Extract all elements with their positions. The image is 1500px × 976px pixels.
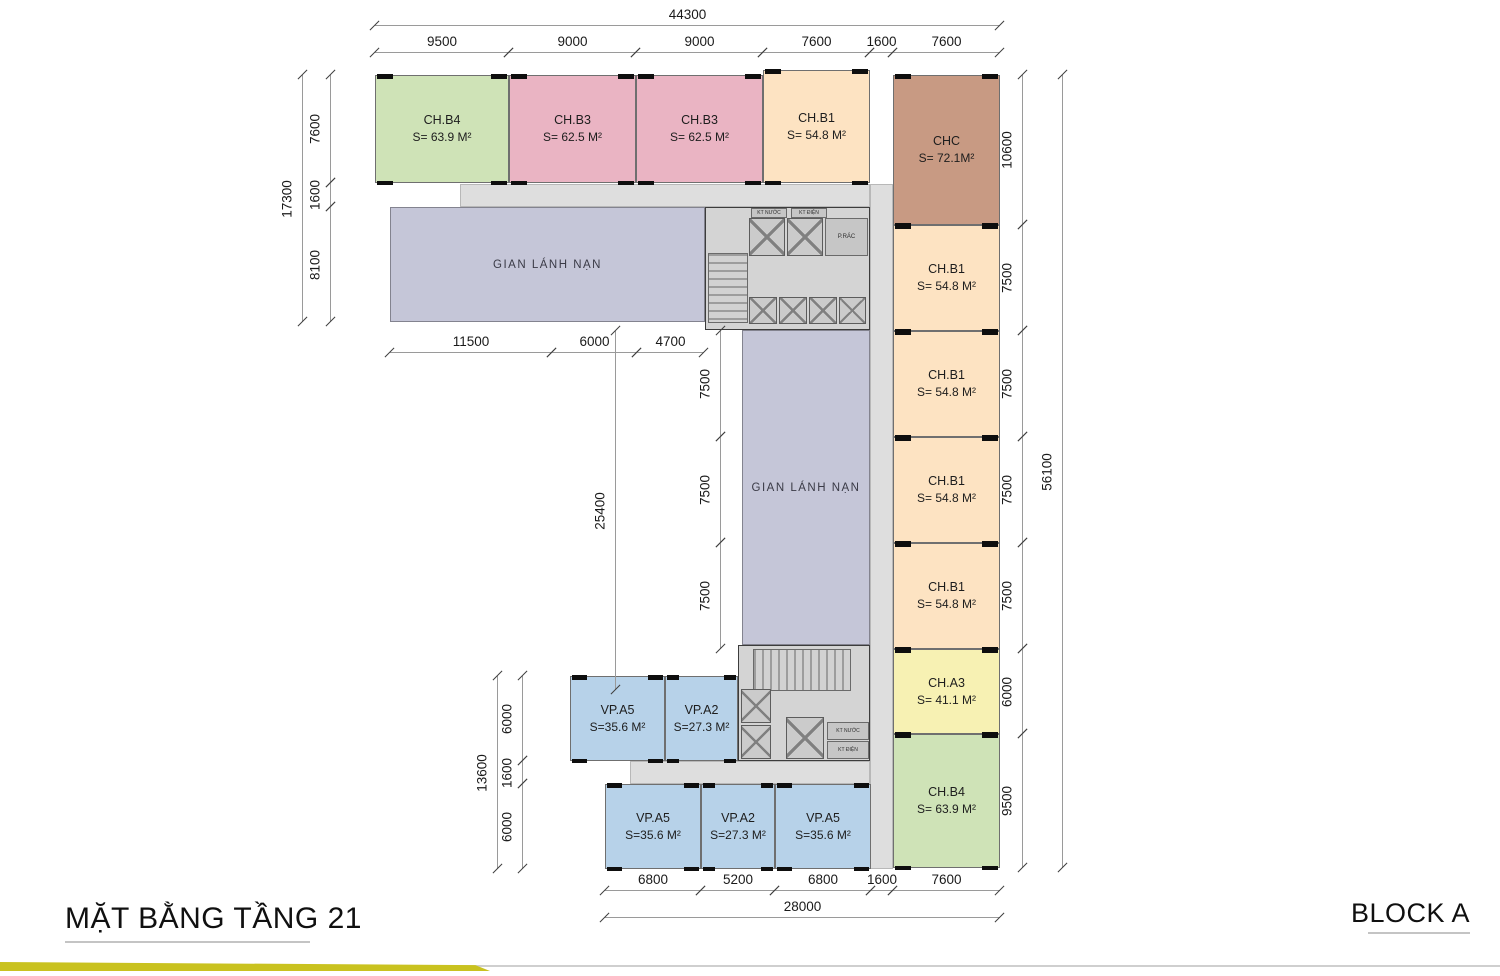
dimension-9000: 9000 — [509, 52, 636, 53]
dimension-17300: 17300 — [302, 75, 303, 322]
room-label: VP.A5 — [806, 811, 840, 826]
refuge-label: GIAN LÁNH NẠN — [493, 259, 602, 271]
dimension-13600: 13600 — [497, 676, 498, 869]
wall-mark — [745, 74, 761, 79]
room-area: S=27.3 M² — [674, 720, 730, 734]
dimension-7500: 7500 — [720, 543, 721, 649]
page-title: MẶT BẰNG TẦNG 21 — [65, 902, 362, 936]
shaft-kt-i-n: KT ĐIỆN — [791, 208, 827, 218]
dim-label: 7500 — [1000, 369, 1015, 399]
room-area: S= 63.9 M² — [412, 130, 471, 144]
room-label: CH.B4 — [928, 785, 965, 800]
wall-mark — [982, 733, 998, 738]
room-area: S= 54.8 M² — [787, 128, 846, 142]
wall-mark — [745, 181, 761, 186]
elevator-icon — [787, 218, 823, 256]
room-label: CH.B3 — [681, 113, 718, 128]
wall-mark — [724, 759, 736, 764]
refuge-vertical: GIAN LÁNH NẠN — [742, 330, 870, 645]
wall-mark — [607, 783, 622, 788]
dim-label: 6000 — [500, 703, 515, 733]
wall-mark — [761, 783, 773, 788]
stairs-icon — [708, 253, 748, 323]
room-label: VP.A2 — [685, 703, 719, 718]
dim-tick — [326, 70, 336, 80]
elevator-icon — [839, 297, 866, 324]
wall-mark — [895, 542, 911, 547]
wall-mark — [638, 181, 654, 186]
room-area: S=35.6 M² — [625, 828, 681, 842]
room-label: CH.B3 — [554, 113, 591, 128]
wall-mark — [765, 69, 781, 74]
room-label: CH.B1 — [928, 580, 965, 595]
dim-label: 56100 — [1040, 453, 1055, 491]
footer-bar — [0, 962, 490, 971]
room-area: S= 62.5 M² — [543, 130, 602, 144]
dimension-7600: 7600 — [763, 52, 870, 53]
dim-tick — [493, 671, 503, 681]
room-ch-a3: CH.A3S= 41.1 M² — [893, 649, 1000, 734]
dim-tick — [518, 671, 528, 681]
wall-mark — [491, 181, 507, 186]
dimension-6000: 6000 — [1022, 649, 1023, 734]
dimension-7600: 7600 — [893, 52, 1000, 53]
wall-mark — [667, 675, 679, 680]
wall-mark — [895, 866, 911, 871]
wall-mark — [895, 648, 911, 653]
wall-mark — [648, 675, 663, 680]
wall-mark — [982, 866, 998, 871]
wall-mark — [703, 867, 715, 872]
corridor-spine — [870, 184, 893, 869]
dimension-28000: 28000 — [605, 917, 1000, 918]
dim-label: 7600 — [931, 34, 961, 49]
dim-tick — [370, 21, 380, 31]
dimension-9500: 9500 — [375, 52, 509, 53]
dim-label: 28000 — [784, 899, 822, 914]
dim-label: 7500 — [1000, 475, 1015, 505]
room-area: S= 63.9 M² — [917, 802, 976, 816]
dim-label: 1600 — [308, 180, 323, 210]
dim-label: 44300 — [669, 7, 707, 22]
dimension-56100: 56100 — [1062, 75, 1063, 868]
wall-mark — [895, 330, 911, 335]
wall-mark — [982, 224, 998, 229]
dim-tick — [1058, 70, 1068, 80]
dimension-7600: 7600 — [330, 75, 331, 183]
room-label: CH.B1 — [928, 262, 965, 277]
wall-mark — [638, 74, 654, 79]
wall-mark — [377, 74, 393, 79]
dim-tick — [298, 70, 308, 80]
room-area: S= 41.1 M² — [917, 693, 976, 707]
room-area: S= 54.8 M² — [917, 385, 976, 399]
wall-mark — [895, 224, 911, 229]
wall-mark — [572, 759, 587, 764]
room-label: VP.A2 — [721, 811, 755, 826]
dim-label: 1600 — [866, 34, 896, 49]
wall-mark — [982, 330, 998, 335]
wall-mark — [648, 759, 663, 764]
dim-tick — [1018, 863, 1028, 873]
dim-label: 6800 — [808, 872, 838, 887]
core-bottom: KT NƯỚCKT ĐIỆN — [738, 645, 870, 761]
dim-tick — [716, 644, 726, 654]
wall-mark — [377, 181, 393, 186]
dimension-44300: 44300 — [375, 25, 1000, 26]
dimension-7500: 7500 — [720, 437, 721, 543]
core-room: P.RÁC — [825, 218, 868, 256]
room-vp-a2-low: VP.A2S=27.3 M² — [701, 784, 775, 869]
dim-label: 7600 — [308, 114, 323, 144]
room-ch-b1-2: CH.B1S= 54.8 M² — [893, 331, 1000, 437]
elevator-icon — [779, 297, 807, 324]
elevator-icon — [786, 717, 824, 759]
dim-label: 10600 — [1000, 131, 1015, 169]
dim-label: 4700 — [655, 334, 685, 349]
dim-tick — [385, 348, 395, 358]
wall-mark — [607, 867, 622, 872]
dim-label: 1600 — [500, 757, 515, 787]
dim-label: 8100 — [308, 249, 323, 279]
dimension-10600: 10600 — [1022, 75, 1023, 225]
dim-tick — [611, 326, 621, 336]
dim-label: 6800 — [638, 872, 668, 887]
room-label: CH.B1 — [928, 368, 965, 383]
dimension-7600: 7600 — [893, 890, 1000, 891]
elevator-icon — [749, 297, 777, 324]
room-area: S= 54.8 M² — [917, 491, 976, 505]
refuge-label: GIAN LÁNH NẠN — [752, 482, 861, 494]
refuge-horizontal: GIAN LÁNH NẠN — [390, 207, 705, 322]
dim-tick — [1058, 863, 1068, 873]
dimension-9000: 9000 — [636, 52, 763, 53]
room-ch-b4-top: CH.B4S= 63.9 M² — [375, 75, 509, 183]
room-chc: CHCS= 72.1M² — [893, 75, 1000, 225]
dim-label: 7600 — [801, 34, 831, 49]
wall-mark — [982, 436, 998, 441]
wall-mark — [761, 867, 773, 872]
room-area: S= 72.1M² — [919, 151, 975, 165]
wall-mark — [618, 181, 634, 186]
corridor-bottom — [630, 761, 870, 784]
wall-mark — [982, 74, 998, 79]
elevator-icon — [749, 218, 785, 256]
dim-tick — [995, 886, 1005, 896]
dim-label: 7500 — [698, 369, 713, 399]
wall-mark — [777, 867, 792, 872]
dim-tick — [518, 864, 528, 874]
dim-label: 7500 — [1000, 263, 1015, 293]
shaft-kt-n-c: KT NƯỚC — [751, 208, 787, 218]
room-ch-b1-1: CH.B1S= 54.8 M² — [893, 225, 1000, 331]
room-ch-b3-1: CH.B3S= 62.5 M² — [509, 75, 636, 183]
room-label: VP.A5 — [601, 703, 635, 718]
wall-mark — [724, 675, 736, 680]
dimension-7500: 7500 — [1022, 331, 1023, 437]
wall-mark — [765, 181, 781, 186]
dim-label: 25400 — [593, 492, 608, 530]
dimension-1600: 1600 — [330, 183, 331, 207]
dimension-7500: 7500 — [1022, 225, 1023, 331]
floor-plan-canvas: MẶT BẰNG TẦNG 21 BLOCK A GIAN LÁNH NẠNGI… — [0, 0, 1500, 976]
room-ch-b1-top: CH.B1S= 54.8 M² — [763, 70, 870, 183]
room-ch-b3-2: CH.B3S= 62.5 M² — [636, 75, 763, 183]
room-ch-b1-3: CH.B1S= 54.8 M² — [893, 437, 1000, 543]
wall-mark — [982, 542, 998, 547]
dim-tick — [1018, 70, 1028, 80]
wall-mark — [854, 783, 869, 788]
room-ch-b4-bottom: CH.B4S= 63.9 M² — [893, 734, 1000, 868]
dim-tick — [370, 48, 380, 58]
dim-label: 6000 — [1000, 676, 1015, 706]
dim-tick — [995, 48, 1005, 58]
page-title-underline — [65, 941, 310, 943]
wall-mark — [982, 648, 998, 653]
dimension-9500: 9500 — [1022, 734, 1023, 868]
dimension-7500: 7500 — [720, 331, 721, 437]
dim-label: 9500 — [1000, 786, 1015, 816]
dimension-6000: 6000 — [522, 784, 523, 869]
wall-mark — [491, 74, 507, 79]
dimension-6800: 6800 — [605, 890, 701, 891]
dim-tick — [600, 913, 610, 923]
footer-line — [455, 965, 1500, 967]
wall-mark — [852, 181, 868, 186]
wall-mark — [777, 783, 792, 788]
room-label: CH.B1 — [928, 474, 965, 489]
wall-mark — [895, 733, 911, 738]
dim-tick — [298, 317, 308, 327]
shaft-kt-i-n: KT ĐIỆN — [827, 741, 869, 759]
room-ch-b1-4: CH.B1S= 54.8 M² — [893, 543, 1000, 649]
room-label: VP.A5 — [636, 811, 670, 826]
room-label: CH.B1 — [798, 111, 835, 126]
dim-label: 13600 — [475, 754, 490, 792]
elevator-icon — [741, 689, 771, 723]
room-vp-a5-up: VP.A5S=35.6 M² — [570, 676, 665, 761]
dimension-7500: 7500 — [1022, 543, 1023, 649]
dim-label: 9000 — [557, 34, 587, 49]
room-vp-a2-up: VP.A2S=27.3 M² — [665, 676, 738, 761]
room-label: CHC — [933, 134, 960, 149]
dim-label: 5200 — [723, 872, 753, 887]
wall-mark — [684, 867, 699, 872]
room-vp-a5-low-1: VP.A5S=35.6 M² — [605, 784, 701, 869]
wall-mark — [511, 181, 527, 186]
dim-tick — [600, 886, 610, 896]
room-area: S=27.3 M² — [710, 828, 766, 842]
wall-mark — [667, 759, 679, 764]
dim-tick — [995, 913, 1005, 923]
dimension-25400: 25400 — [615, 331, 616, 690]
dim-tick — [326, 317, 336, 327]
dim-label: 7600 — [931, 872, 961, 887]
wall-mark — [703, 783, 715, 788]
dim-label: 17300 — [280, 180, 295, 218]
wall-mark — [618, 74, 634, 79]
dim-tick — [493, 864, 503, 874]
block-title: BLOCK A — [1351, 898, 1470, 929]
shaft-kt-n-c: KT NƯỚC — [827, 722, 869, 740]
elevator-icon — [741, 725, 771, 759]
dimension-5200: 5200 — [701, 890, 775, 891]
dimension-4700: 4700 — [637, 352, 704, 353]
dim-label: 6000 — [579, 334, 609, 349]
block-title-underline — [1368, 932, 1470, 934]
dim-label: 1600 — [867, 872, 897, 887]
room-area: S= 62.5 M² — [670, 130, 729, 144]
wall-mark — [572, 675, 587, 680]
wall-mark — [684, 783, 699, 788]
room-area: S= 54.8 M² — [917, 279, 976, 293]
room-vp-a5-low-2: VP.A5S=35.6 M² — [775, 784, 871, 869]
wall-mark — [895, 436, 911, 441]
dim-tick — [699, 348, 709, 358]
dim-label: 11500 — [453, 334, 490, 349]
dim-label: 9000 — [684, 34, 714, 49]
wall-mark — [895, 74, 911, 79]
dimension-6000: 6000 — [522, 676, 523, 761]
dim-label: 7500 — [698, 581, 713, 611]
room-area: S= 54.8 M² — [917, 597, 976, 611]
dim-label: 9500 — [427, 34, 457, 49]
room-label: CH.A3 — [928, 676, 965, 691]
room-area: S=35.6 M² — [590, 720, 646, 734]
dimension-6000: 6000 — [552, 352, 637, 353]
room-area: S=35.6 M² — [795, 828, 851, 842]
dim-tick — [995, 21, 1005, 31]
wall-mark — [854, 867, 869, 872]
dim-label: 7500 — [1000, 581, 1015, 611]
dimension-6800: 6800 — [775, 890, 871, 891]
dim-label: 6000 — [500, 811, 515, 841]
wall-mark — [511, 74, 527, 79]
dim-label: 7500 — [698, 475, 713, 505]
stairs-icon — [753, 649, 851, 691]
core-top: P.RÁCKT NƯỚCKT ĐIỆN — [705, 207, 870, 330]
dimension-11500: 11500 — [390, 352, 552, 353]
elevator-icon — [809, 297, 837, 324]
corridor-top — [460, 184, 870, 207]
dimension-7500: 7500 — [1022, 437, 1023, 543]
dimension-8100: 8100 — [330, 207, 331, 322]
room-label: CH.B4 — [424, 113, 461, 128]
wall-mark — [852, 69, 868, 74]
